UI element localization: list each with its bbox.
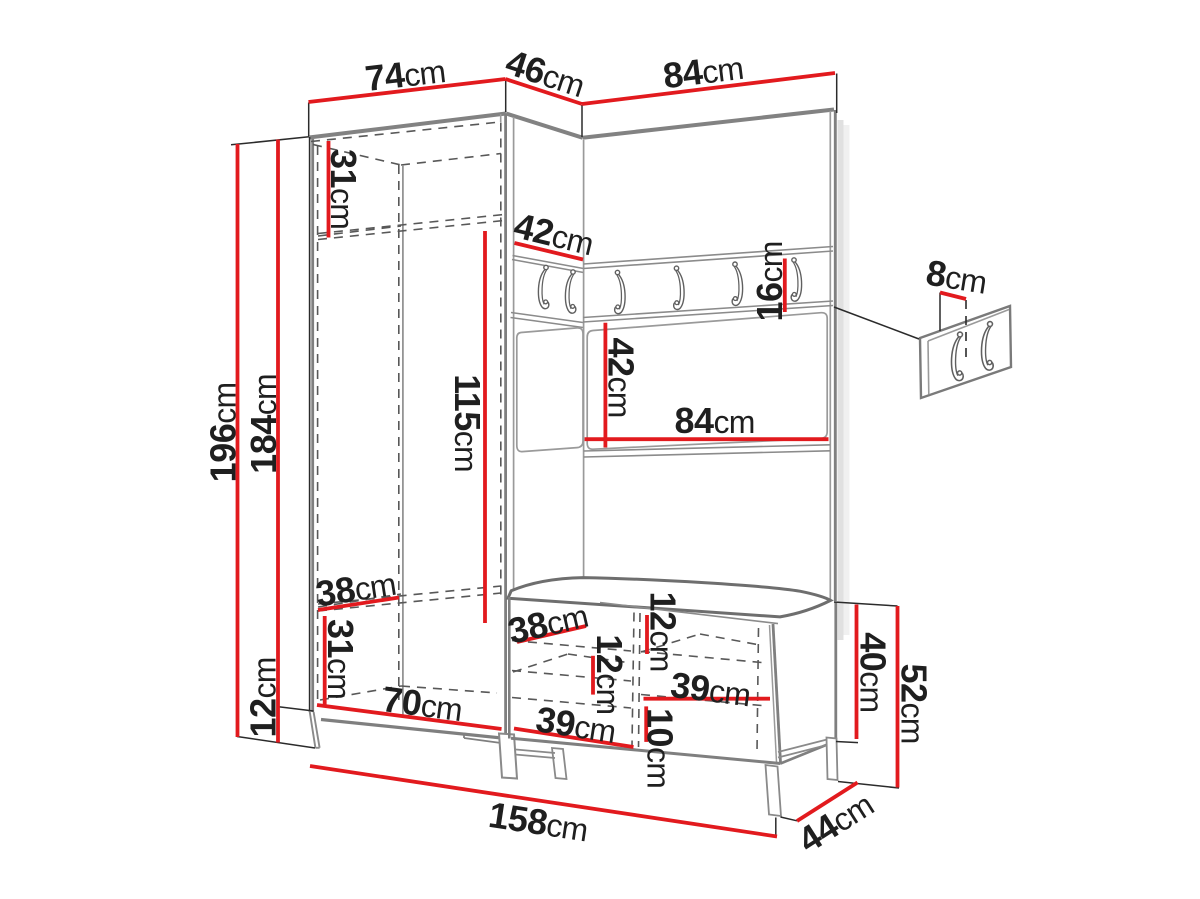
svg-text:42cm: 42cm — [601, 337, 642, 417]
svg-text:52cm: 52cm — [894, 663, 935, 743]
svg-text:40cm: 40cm — [853, 632, 894, 712]
svg-text:84cm: 84cm — [674, 400, 754, 441]
svg-text:12cm: 12cm — [643, 591, 684, 671]
svg-text:12cm: 12cm — [243, 657, 284, 737]
svg-text:115cm: 115cm — [447, 374, 488, 472]
svg-text:31cm: 31cm — [323, 149, 364, 229]
svg-text:196cm: 196cm — [203, 383, 244, 483]
svg-text:184cm: 184cm — [243, 374, 284, 474]
svg-text:12cm: 12cm — [589, 634, 630, 714]
svg-text:10cm: 10cm — [640, 708, 681, 788]
svg-text:16cm: 16cm — [749, 241, 790, 321]
svg-text:31cm: 31cm — [320, 619, 361, 699]
